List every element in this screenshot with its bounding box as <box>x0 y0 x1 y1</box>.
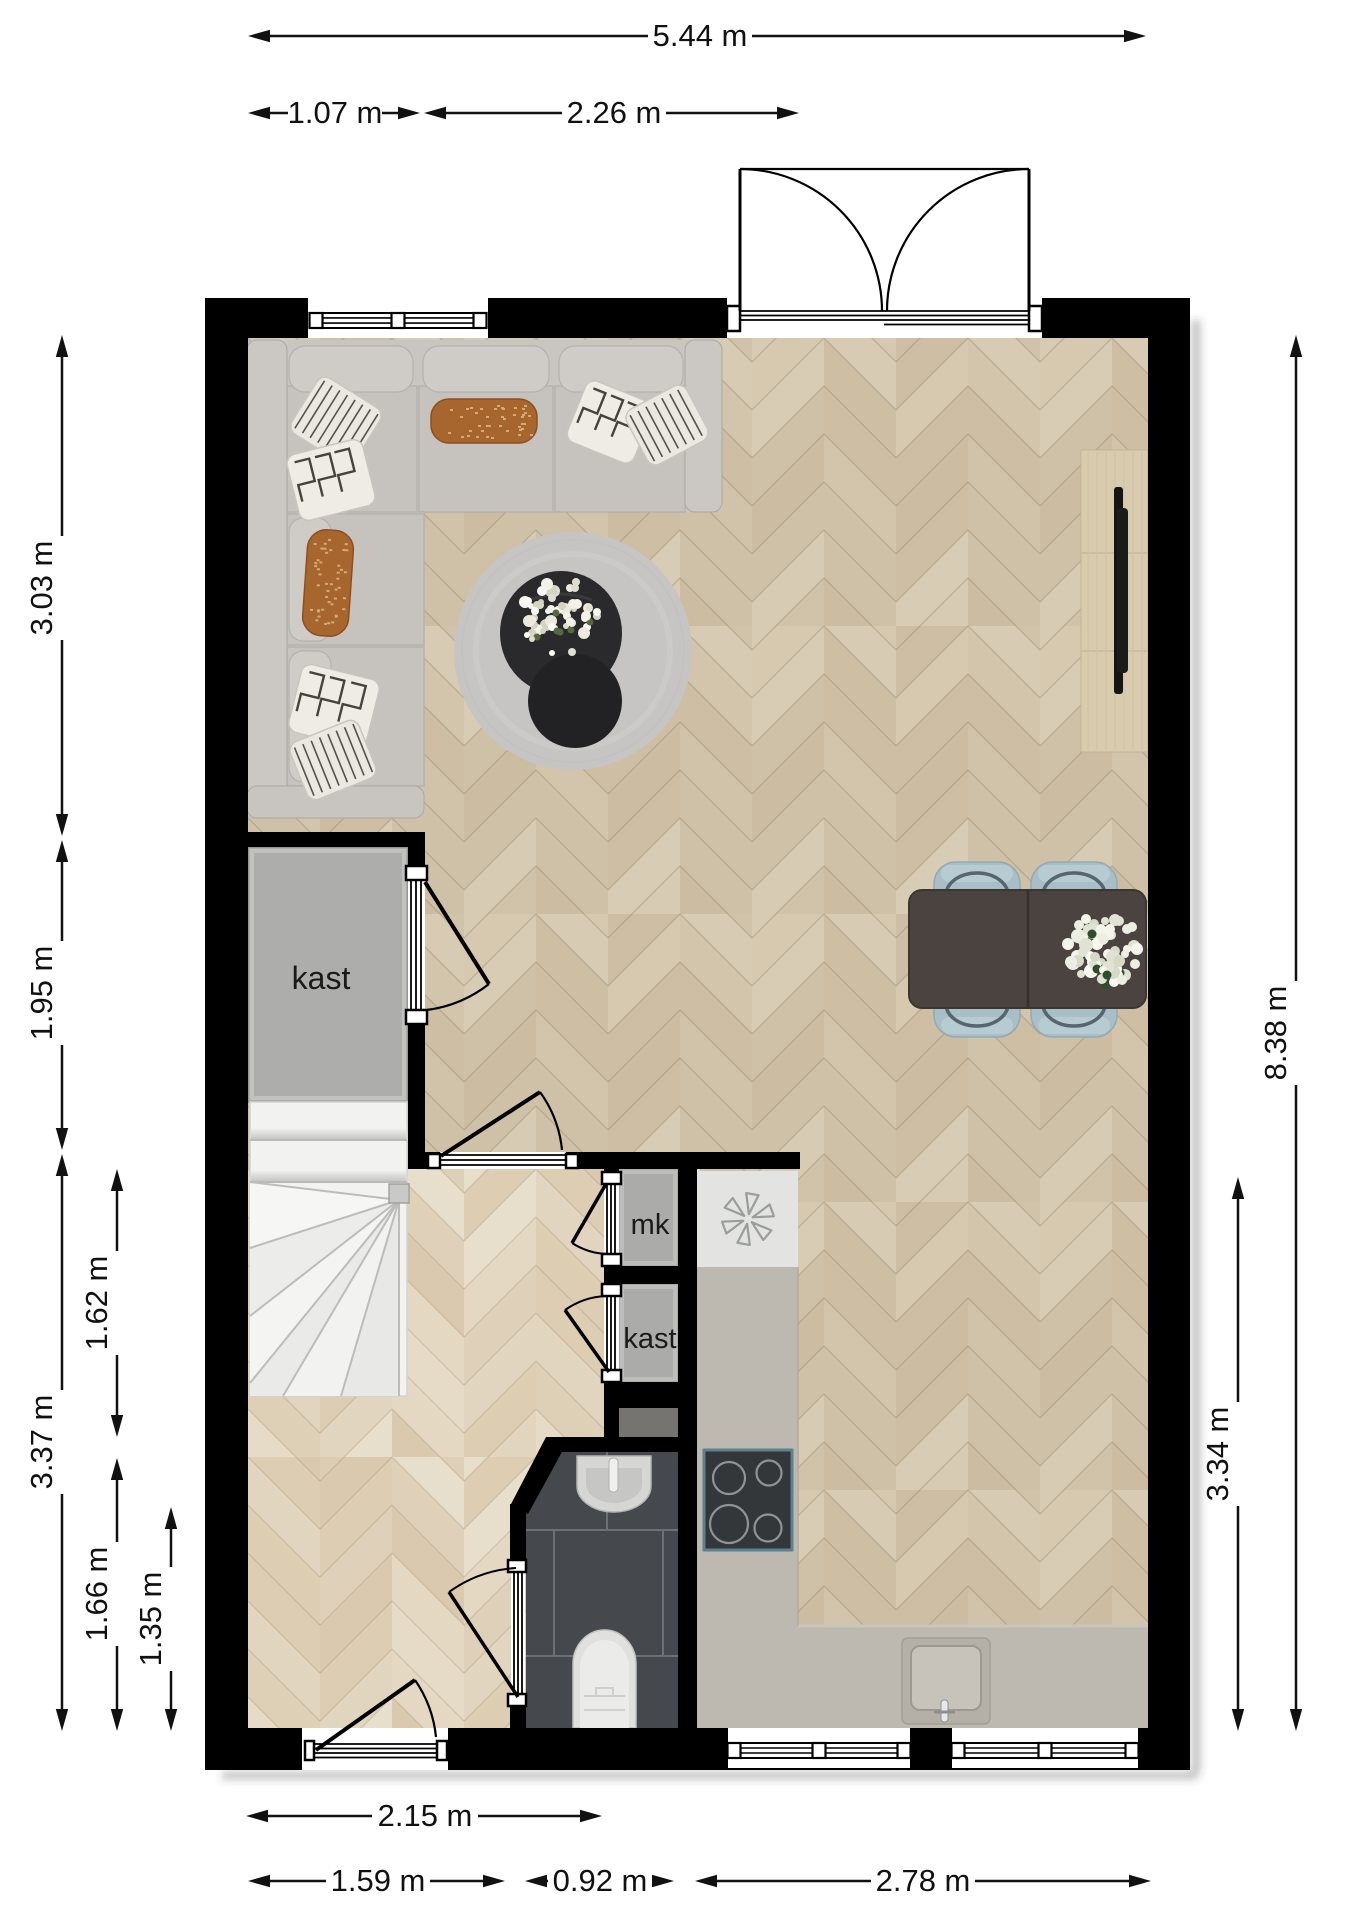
svg-text:2.78 m: 2.78 m <box>876 1863 971 1898</box>
svg-text:1.62 m: 1.62 m <box>79 1256 114 1351</box>
svg-text:1.95 m: 1.95 m <box>24 946 59 1041</box>
svg-text:1.59 m: 1.59 m <box>331 1863 426 1898</box>
svg-text:2.26 m: 2.26 m <box>567 95 662 130</box>
svg-text:1.66 m: 1.66 m <box>79 1547 114 1642</box>
svg-text:3.37 m: 3.37 m <box>24 1395 59 1490</box>
svg-text:3.03 m: 3.03 m <box>24 541 59 636</box>
svg-text:5.44 m: 5.44 m <box>653 18 748 53</box>
svg-text:kast: kast <box>623 1323 676 1355</box>
svg-text:8.38 m: 8.38 m <box>1258 986 1293 1081</box>
svg-text:1.35 m: 1.35 m <box>133 1572 168 1667</box>
svg-text:mk: mk <box>631 1209 670 1241</box>
svg-text:1.07 m: 1.07 m <box>288 95 383 130</box>
svg-text:0.92 m: 0.92 m <box>553 1863 648 1898</box>
svg-text:kast: kast <box>292 960 351 996</box>
svg-text:3.34 m: 3.34 m <box>1200 1407 1235 1502</box>
svg-text:2.15 m: 2.15 m <box>378 1798 473 1833</box>
